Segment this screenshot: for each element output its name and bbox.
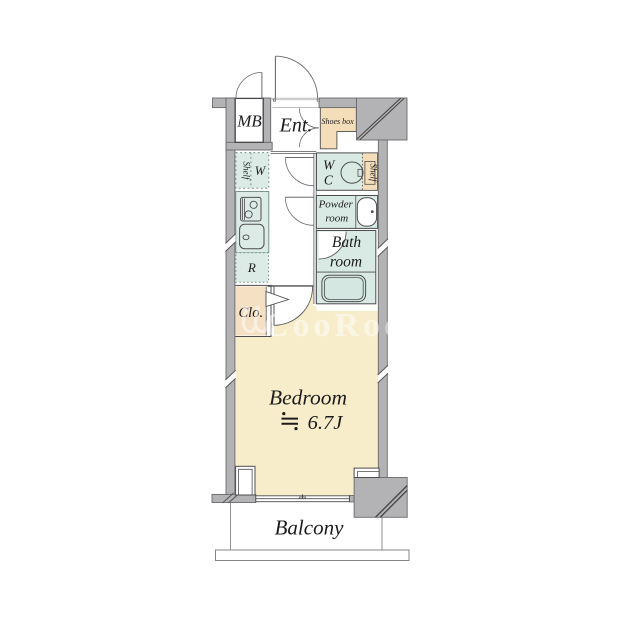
svg-text:Bedroom: Bedroom: [269, 386, 347, 410]
svg-text:Bath: Bath: [332, 234, 362, 251]
svg-text:Shelf: Shelf: [241, 162, 251, 181]
svg-text:6.7J: 6.7J: [308, 412, 344, 434]
svg-text:Shoes box: Shoes box: [321, 117, 354, 126]
svg-text:Balcony: Balcony: [275, 516, 344, 540]
svg-text:Ent.: Ent.: [279, 115, 313, 137]
svg-text:CooRooM: CooRooM: [264, 307, 441, 344]
svg-text:room: room: [325, 213, 348, 225]
svg-text:R: R: [247, 260, 256, 275]
svg-text:Powder: Powder: [318, 199, 354, 211]
svg-text:MB: MB: [236, 112, 262, 131]
svg-text:C: C: [324, 173, 334, 188]
svg-text:W: W: [255, 164, 267, 178]
svg-text:Shelf: Shelf: [368, 164, 378, 183]
svg-text:room: room: [330, 253, 362, 270]
svg-text:W: W: [323, 157, 336, 172]
